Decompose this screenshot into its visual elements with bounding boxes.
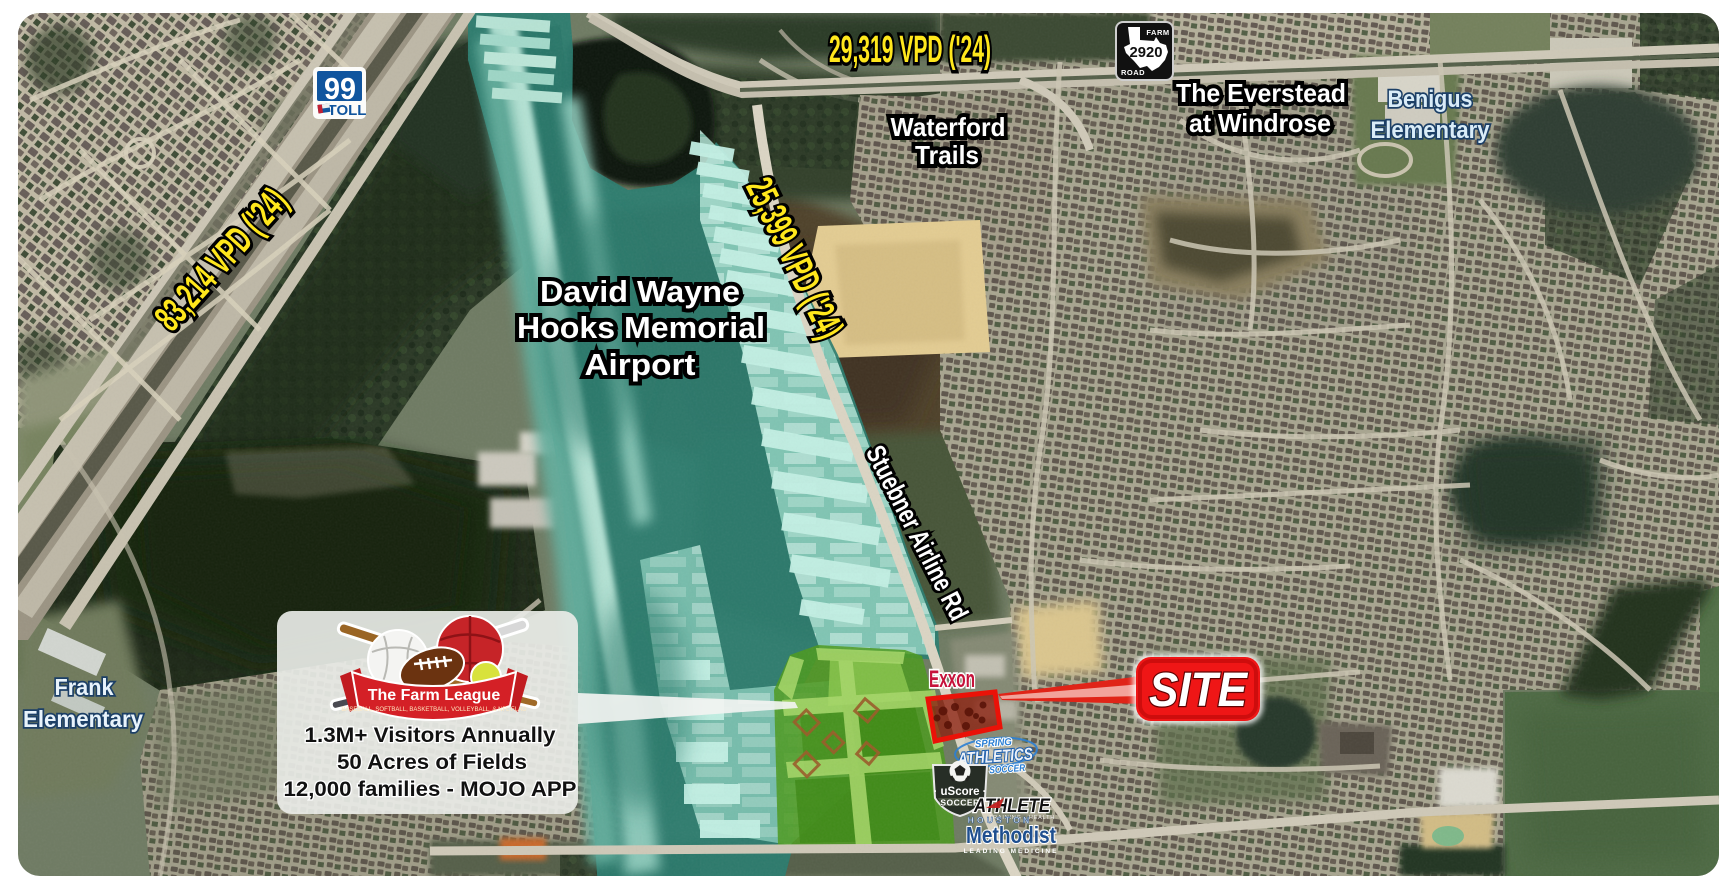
svg-text:Benigus: Benigus	[1388, 86, 1473, 113]
svg-text:12,000 families - MOJO APP: 12,000 families - MOJO APP	[284, 778, 577, 801]
svg-text:Hooks Memorial: Hooks Memorial	[517, 310, 765, 345]
svg-text:Methodist: Methodist	[966, 822, 1056, 848]
svg-text:The Everstead: The Everstead	[1176, 78, 1346, 108]
svg-text:Frank: Frank	[55, 674, 114, 700]
svg-text:29,319 VPD ('24): 29,319 VPD ('24)	[829, 29, 991, 71]
svg-text:50 Acres of Fields: 50 Acres of Fields	[337, 751, 527, 774]
svg-text:BASEBALL, SOFTBALL, BASKETBALL: BASEBALL, SOFTBALL, BASKETBALL, VOLLEYBA…	[341, 707, 527, 713]
svg-text:The Farm League: The Farm League	[368, 687, 501, 704]
svg-text:99: 99	[324, 71, 356, 106]
svg-text:FARM: FARM	[1146, 28, 1169, 37]
svg-text:2920: 2920	[1130, 44, 1163, 61]
svg-text:David Wayne: David Wayne	[540, 274, 740, 309]
svg-text:Trails: Trails	[915, 140, 979, 170]
svg-text:SITE: SITE	[1149, 664, 1249, 717]
svg-text:Elementary: Elementary	[23, 706, 143, 732]
svg-text:LEADING MEDICINE: LEADING MEDICINE	[964, 848, 1059, 855]
svg-text:Airport: Airport	[585, 347, 696, 382]
svg-text:TOLL: TOLL	[328, 102, 367, 119]
svg-text:Exxon: Exxon	[929, 666, 975, 693]
svg-text:Elementary: Elementary	[1371, 117, 1491, 144]
svg-text:ROAD: ROAD	[1121, 68, 1145, 77]
svg-text:1.3M+ Visitors Annually: 1.3M+ Visitors Annually	[305, 724, 556, 747]
svg-text:ATHLETE: ATHLETE	[973, 796, 1051, 817]
svg-text:Waterford: Waterford	[891, 112, 1006, 142]
svg-text:at Windrose: at Windrose	[1189, 108, 1331, 138]
